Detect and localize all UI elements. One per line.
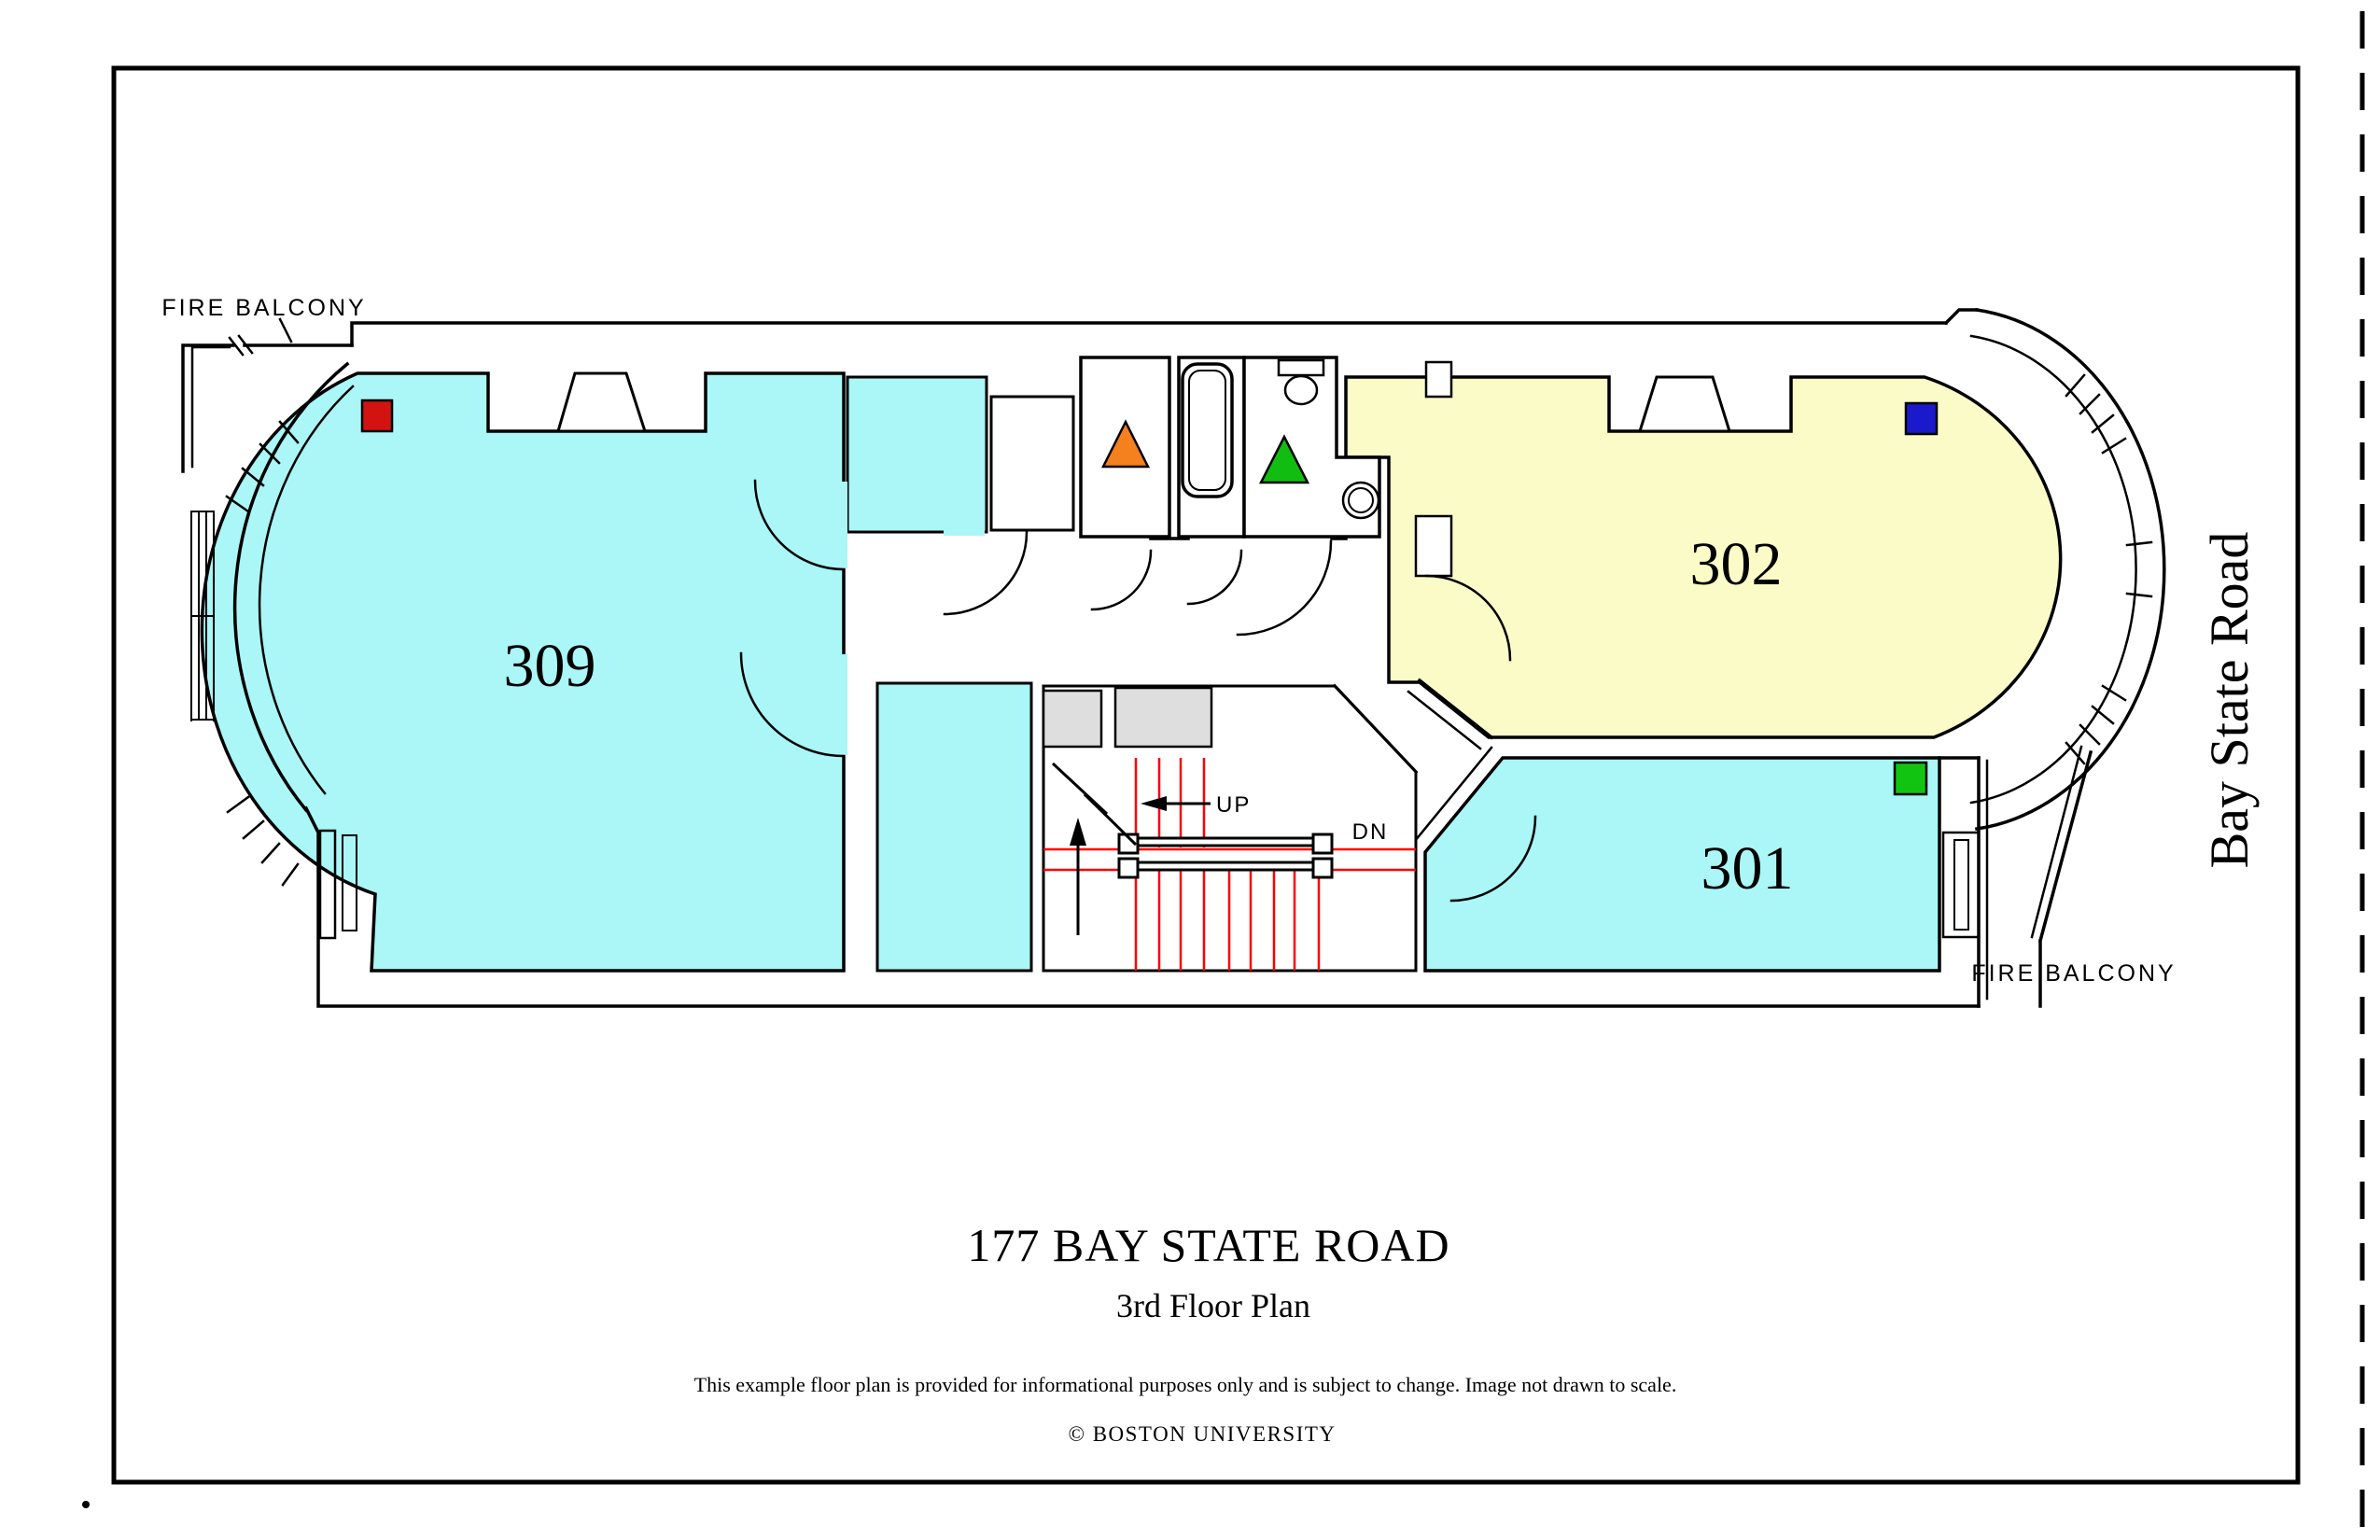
plan-copyright: © BOSTON UNIVERSITY xyxy=(1068,1422,1336,1446)
plan-title: 177 BAY STATE ROAD xyxy=(967,1219,1449,1271)
stairs-down-label: DN xyxy=(1352,819,1389,845)
plan-disclaimer: This example floor plan is provided for … xyxy=(694,1373,1677,1396)
room-309-label: 309 xyxy=(504,632,596,700)
shaft-gray-1 xyxy=(1043,691,1101,747)
street-name-label: Bay State Road xyxy=(2199,532,2260,869)
sink-counter-icon xyxy=(1279,360,1323,375)
toilet-inner xyxy=(1349,488,1373,512)
shaft-box xyxy=(991,397,1073,530)
shaft-gray-2 xyxy=(1115,688,1211,747)
marker-green-square xyxy=(1895,763,1926,794)
door-gap-2 xyxy=(840,654,847,755)
fire-balcony-bottom-label: FIRE BALCONY xyxy=(1971,960,2176,987)
room-301-area xyxy=(1425,758,1939,971)
floor-plan-page: UP DN FIRE BALCONY FIRE BALCONY 309 302 … xyxy=(0,0,2380,1540)
marker-red-square xyxy=(362,400,392,431)
room-309-annex-lower xyxy=(877,683,1031,971)
door-gap-3 xyxy=(944,529,985,536)
bathtub-inner xyxy=(1189,371,1225,490)
window-trapezoid-302 xyxy=(1640,377,1729,431)
duct-notch-lower xyxy=(1416,516,1451,576)
door-gap-1 xyxy=(840,482,847,568)
sink-basin-icon xyxy=(1285,376,1317,404)
marker-blue-square xyxy=(1906,403,1937,434)
stairwell: UP DN xyxy=(1043,686,1416,971)
stairs-up-label: UP xyxy=(1216,792,1251,818)
room-301-label: 301 xyxy=(1701,834,1794,903)
floor-plan-canvas: UP DN FIRE BALCONY FIRE BALCONY 309 302 … xyxy=(0,0,2380,1540)
plan-subtitle: 3rd Floor Plan xyxy=(1116,1287,1310,1324)
stray-dot xyxy=(82,1501,90,1508)
duct-notch-upper xyxy=(1426,362,1451,397)
room-309-annex-upper xyxy=(847,377,987,532)
fire-balcony-top-label: FIRE BALCONY xyxy=(161,295,366,321)
room-302-label: 302 xyxy=(1690,530,1783,598)
